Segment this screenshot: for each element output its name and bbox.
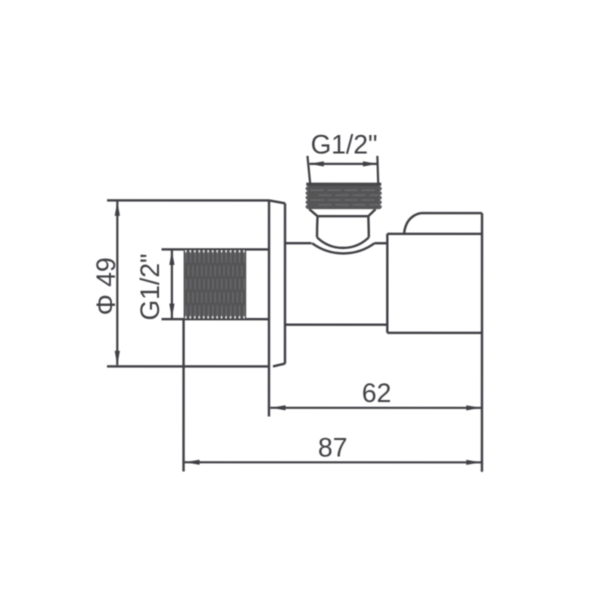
svg-text:G1/2": G1/2" <box>311 130 378 160</box>
svg-text:Φ 49: Φ 49 <box>91 257 121 315</box>
svg-text:62: 62 <box>362 378 391 408</box>
svg-text:G1/2": G1/2" <box>135 254 165 321</box>
svg-text:87: 87 <box>318 432 347 462</box>
